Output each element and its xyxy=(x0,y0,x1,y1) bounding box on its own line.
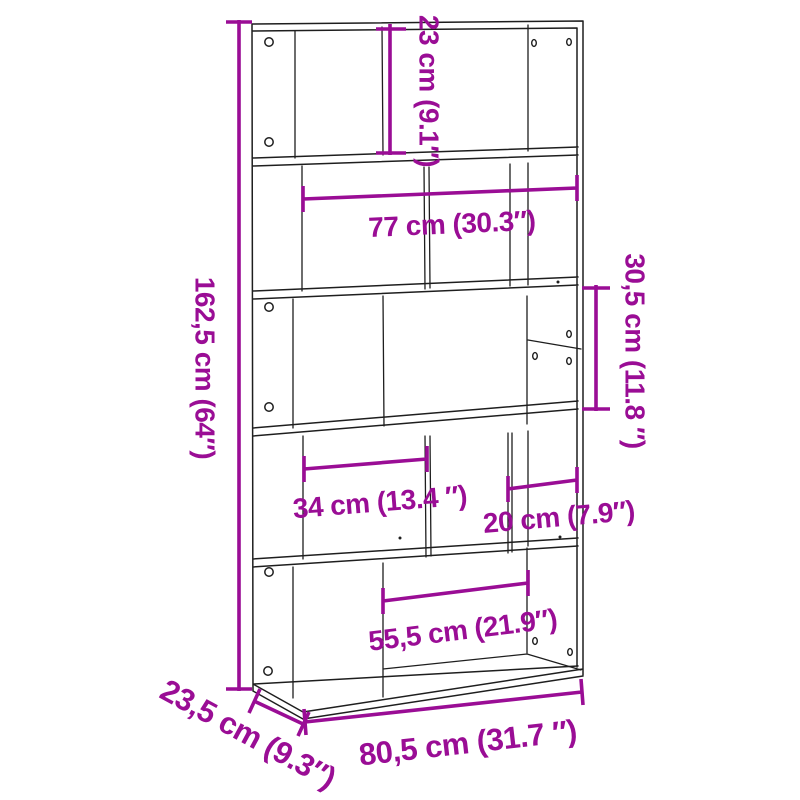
dimension-left-section-width: 34 cm (13.4 ″) xyxy=(292,446,468,524)
cam-hole xyxy=(265,403,273,411)
dimension-line xyxy=(303,175,577,212)
cam-hole xyxy=(264,667,272,675)
shelf-pin xyxy=(399,537,402,540)
dimension-line xyxy=(376,24,406,155)
shelf-pin xyxy=(559,536,562,539)
dimension-total-width: 80,5 cm (31.7 ″) xyxy=(304,679,583,772)
dimension-label: 162,5 cm (64″) xyxy=(190,277,221,459)
dimension-label: 55,5 cm (21.9″) xyxy=(367,603,559,657)
screw-hole xyxy=(533,353,538,360)
dimension-tier3-height: 30,5 cm (11.8 ″) xyxy=(582,253,651,448)
bookcase-dimension-diagram: 23 cm (9.1″) 77 cm (30.3″) 162,5 cm (64″… xyxy=(0,0,800,800)
dimension-label: 20 cm (7.9″) xyxy=(482,495,636,539)
dimension-tier1-height: 23 cm (9.1″) xyxy=(376,15,445,167)
dimension-label: 34 cm (13.4 ″) xyxy=(292,480,468,525)
screw-hole xyxy=(567,39,572,46)
cam-hole xyxy=(265,138,273,146)
dimension-label: 23,5 cm (9.3″) xyxy=(155,672,342,795)
cam-hole xyxy=(265,568,273,576)
cam-hole xyxy=(265,38,273,46)
dimension-annotations: 23 cm (9.1″) 77 cm (30.3″) 162,5 cm (64″… xyxy=(155,15,651,796)
shelf-pin xyxy=(557,281,560,284)
dimension-label: 23 cm (9.1″) xyxy=(414,15,445,167)
dimension-label: 80,5 cm (31.7 ″) xyxy=(357,713,578,773)
cam-hole xyxy=(265,303,273,311)
dimension-bottom-section-width: 55,5 cm (21.9″) xyxy=(367,570,559,657)
dimension-line xyxy=(582,285,610,411)
dimension-line xyxy=(383,570,528,614)
dimension-line xyxy=(226,20,252,691)
dimension-inner-width: 77 cm (30.3″) xyxy=(303,175,577,243)
screw-hole xyxy=(568,649,573,656)
screw-hole xyxy=(567,331,572,338)
dimension-label: 30,5 cm (11.8 ″) xyxy=(620,253,651,448)
dimension-right-section-width: 20 cm (7.9″) xyxy=(482,467,636,539)
dimension-line xyxy=(508,467,577,502)
dimension-label: 77 cm (30.3″) xyxy=(368,205,536,243)
cam-lock-holes xyxy=(264,38,273,675)
screw-hole xyxy=(567,358,572,365)
dimension-line xyxy=(304,446,427,482)
screw-hole xyxy=(533,638,538,645)
screw-hole xyxy=(532,40,537,47)
dimension-total-height: 162,5 cm (64″) xyxy=(190,20,252,691)
dimension-depth: 23,5 cm (9.3″) xyxy=(155,672,342,795)
